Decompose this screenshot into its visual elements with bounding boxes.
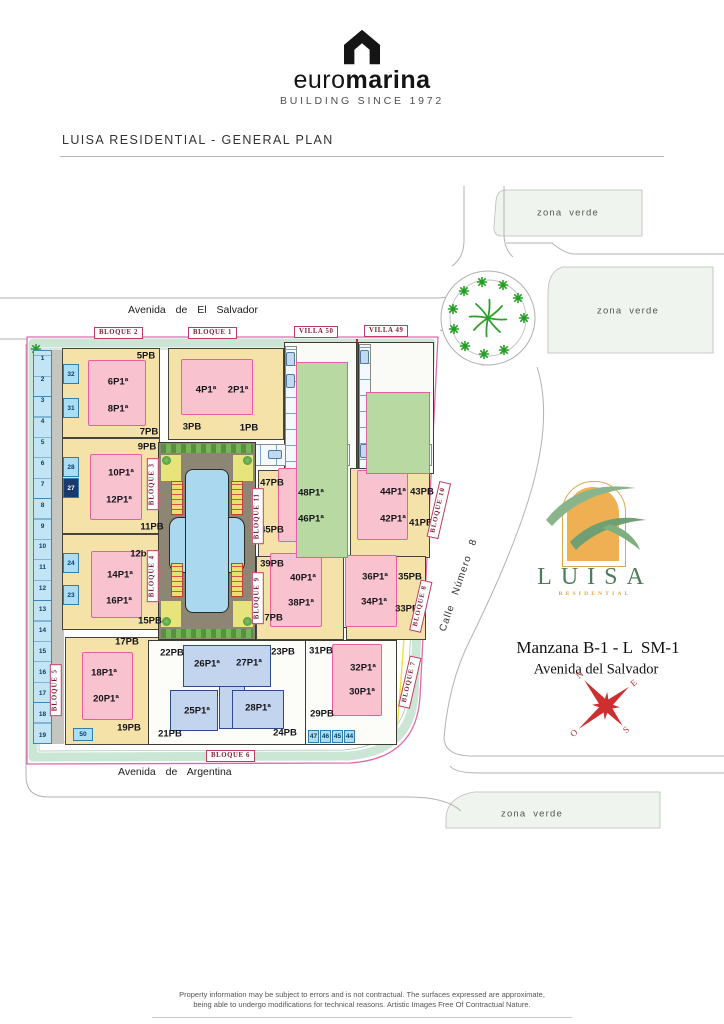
compass-s: S — [621, 724, 631, 735]
car-icon — [286, 374, 295, 388]
unit-label: 44P1ª — [380, 487, 406, 498]
unit-label: 25P1ª — [184, 706, 210, 717]
parking-number: 14 — [39, 627, 46, 634]
building-pink — [345, 555, 397, 627]
unit-label: 17PB — [115, 637, 139, 648]
disclaimer-line2: being able to undergo modifications for … — [0, 1000, 724, 1009]
car-icon — [286, 352, 295, 366]
label-villa49: VILLA 49 — [364, 325, 408, 337]
pool-water — [185, 469, 229, 613]
bush-icon — [243, 456, 252, 465]
street-el-salvador: Avenida de El Salvador — [128, 304, 258, 316]
unit-label: 31PB — [309, 646, 333, 657]
compass-rose: N E S O — [552, 668, 662, 750]
bush-icon — [162, 617, 171, 626]
parking-row-44-47: 47 46 45 44 — [308, 730, 355, 743]
unit-label: 43PB — [410, 487, 434, 498]
unit-label: 47PB — [260, 478, 284, 489]
pool-courtyard — [158, 442, 256, 640]
parking-slot-50: 50 — [73, 728, 93, 741]
parking-number: 16 — [39, 669, 46, 676]
label-villa50: VILLA 50 — [294, 326, 338, 338]
bush-icon — [162, 456, 171, 465]
building-pink — [90, 454, 142, 520]
euromarina-house-icon — [344, 28, 380, 66]
parking-slot: 28 — [63, 457, 79, 477]
unit-label: 20P1ª — [93, 694, 119, 705]
unit-label: 10P1ª — [108, 468, 134, 479]
unit-label: 18P1ª — [91, 668, 117, 679]
parking-number: 13 — [39, 606, 46, 613]
parking-number: 17 — [39, 690, 46, 697]
building-pink — [91, 551, 142, 618]
unit-label: 23PB — [271, 647, 295, 658]
parking-number: 1 — [41, 355, 45, 362]
label-bloque4: BLOQUE 4 — [147, 550, 159, 602]
label-bloque11: BLOQUE 11 — [252, 488, 264, 544]
unit-label: 19PB — [117, 723, 141, 734]
parking-slot: 47 — [308, 730, 319, 743]
unit-label: 15PB — [138, 616, 162, 627]
compass-n: N — [574, 668, 586, 680]
zona-verde-label: zona verde — [501, 809, 563, 820]
disclaimer-line1: Property information may be subject to e… — [0, 990, 724, 999]
bush-icon — [243, 617, 252, 626]
luisa-wordmark: LUISA — [510, 564, 680, 591]
unit-label: 6P1ª — [108, 377, 128, 388]
unit-label: 8P1ª — [108, 404, 128, 415]
building-pink — [82, 652, 133, 720]
parking-number: 12 — [39, 585, 46, 592]
building-villa49 — [366, 392, 430, 474]
sun-loungers — [231, 563, 243, 597]
car-icon — [268, 450, 282, 459]
parking-slot: 24 — [63, 553, 79, 573]
unit-label: 38P1ª — [288, 598, 314, 609]
unit-label: 5PB — [137, 351, 155, 362]
parking-number: 11 — [39, 564, 46, 571]
label-bloque1: BLOQUE 1 — [188, 327, 237, 339]
unit-label: 36P1ª — [362, 572, 388, 583]
zona-verde-label: zona verde — [597, 306, 659, 317]
parking-slot: 44 — [344, 730, 355, 743]
unit-label: 21PB — [158, 729, 182, 740]
unit-label: 48P1ª — [298, 488, 324, 499]
parking-number: 6 — [41, 460, 45, 467]
unit-label: 2P1ª — [228, 385, 248, 396]
unit-label: 27P1ª — [236, 658, 262, 669]
parking-slot: 23 — [63, 585, 79, 605]
unit-label: 46P1ª — [298, 514, 324, 525]
car-icon — [360, 350, 369, 364]
building-pink — [88, 360, 146, 426]
unit-label: 7PB — [140, 427, 158, 438]
unit-label: 26P1ª — [194, 659, 220, 670]
street-argentina: Avenida de Argentina — [118, 766, 232, 778]
unit-label: 30P1ª — [349, 687, 375, 698]
unit-label: 3PB — [183, 422, 201, 433]
label-bloque6: BLOQUE 6 — [206, 750, 255, 762]
unit-label: 24PB — [273, 728, 297, 739]
unit-label: 35PB — [398, 572, 422, 583]
label-bloque9: BLOQUE 9 — [252, 572, 264, 624]
unit-label: 40P1ª — [290, 573, 316, 584]
parking-slot: 32 — [63, 364, 79, 384]
unit-label: 11PB — [140, 522, 163, 533]
parking-number: 4 — [41, 418, 45, 425]
hedge — [161, 444, 253, 453]
luisa-subtitle: RESIDENTIAL — [510, 591, 680, 597]
parking-number: 5 — [41, 439, 45, 446]
parking-number: 7 — [41, 481, 45, 488]
parking-number: 19 — [39, 732, 46, 739]
sun-loungers — [171, 481, 183, 515]
zona-verde-label: zona verde — [537, 208, 599, 219]
building-villa50 — [296, 362, 348, 558]
unit-label: 39PB — [260, 559, 284, 570]
unit-label: 14P1ª — [107, 570, 133, 581]
roundabout — [441, 271, 535, 365]
building-pink — [332, 644, 382, 716]
unit-label: 1PB — [240, 423, 258, 434]
parking-slot: 31 — [63, 398, 79, 418]
parking-slot: 46 — [320, 730, 331, 743]
label-bloque5: BLOQUE 5 — [50, 664, 62, 716]
unit-label: 28P1ª — [245, 703, 271, 714]
unit-label: 34P1ª — [361, 597, 387, 608]
page: euromarina BUILDING SINCE 1972 LUISA RES… — [0, 0, 724, 1024]
parking-number: 8 — [41, 502, 45, 509]
unit-label: 42P1ª — [380, 514, 406, 525]
footer-rule — [152, 1017, 572, 1018]
parking-number: 2 — [41, 376, 45, 383]
parking-number: 18 — [39, 711, 46, 718]
manzana-title: Manzana B-1 - L SM-1 — [516, 638, 679, 658]
compass-o: O — [568, 727, 580, 739]
label-bloque2: BLOQUE 2 — [94, 327, 143, 339]
sun-loungers — [171, 563, 183, 597]
unit-label: 4P1ª — [196, 385, 216, 396]
parking-number: 15 — [39, 648, 46, 655]
unit-label: 22PB — [160, 648, 184, 659]
palm-fronds-icon — [540, 462, 670, 572]
unit-label: 9PB — [138, 442, 156, 453]
parking-number: 9 — [41, 523, 45, 530]
compass-e: E — [628, 677, 639, 689]
sun-loungers — [231, 481, 243, 515]
hedge — [161, 629, 253, 638]
building-pink — [357, 470, 408, 540]
parking-number: 3 — [41, 397, 45, 404]
label-bloque3: BLOQUE 3 — [147, 458, 159, 510]
unit-label: 29PB — [310, 709, 334, 720]
parking-slot: 45 — [332, 730, 343, 743]
parking-number: 10 — [39, 543, 46, 550]
unit-label: 12P1ª — [106, 495, 132, 506]
parking-slot: 27 — [63, 478, 79, 498]
unit-label: 16P1ª — [106, 596, 132, 607]
unit-label: 32P1ª — [350, 663, 376, 674]
